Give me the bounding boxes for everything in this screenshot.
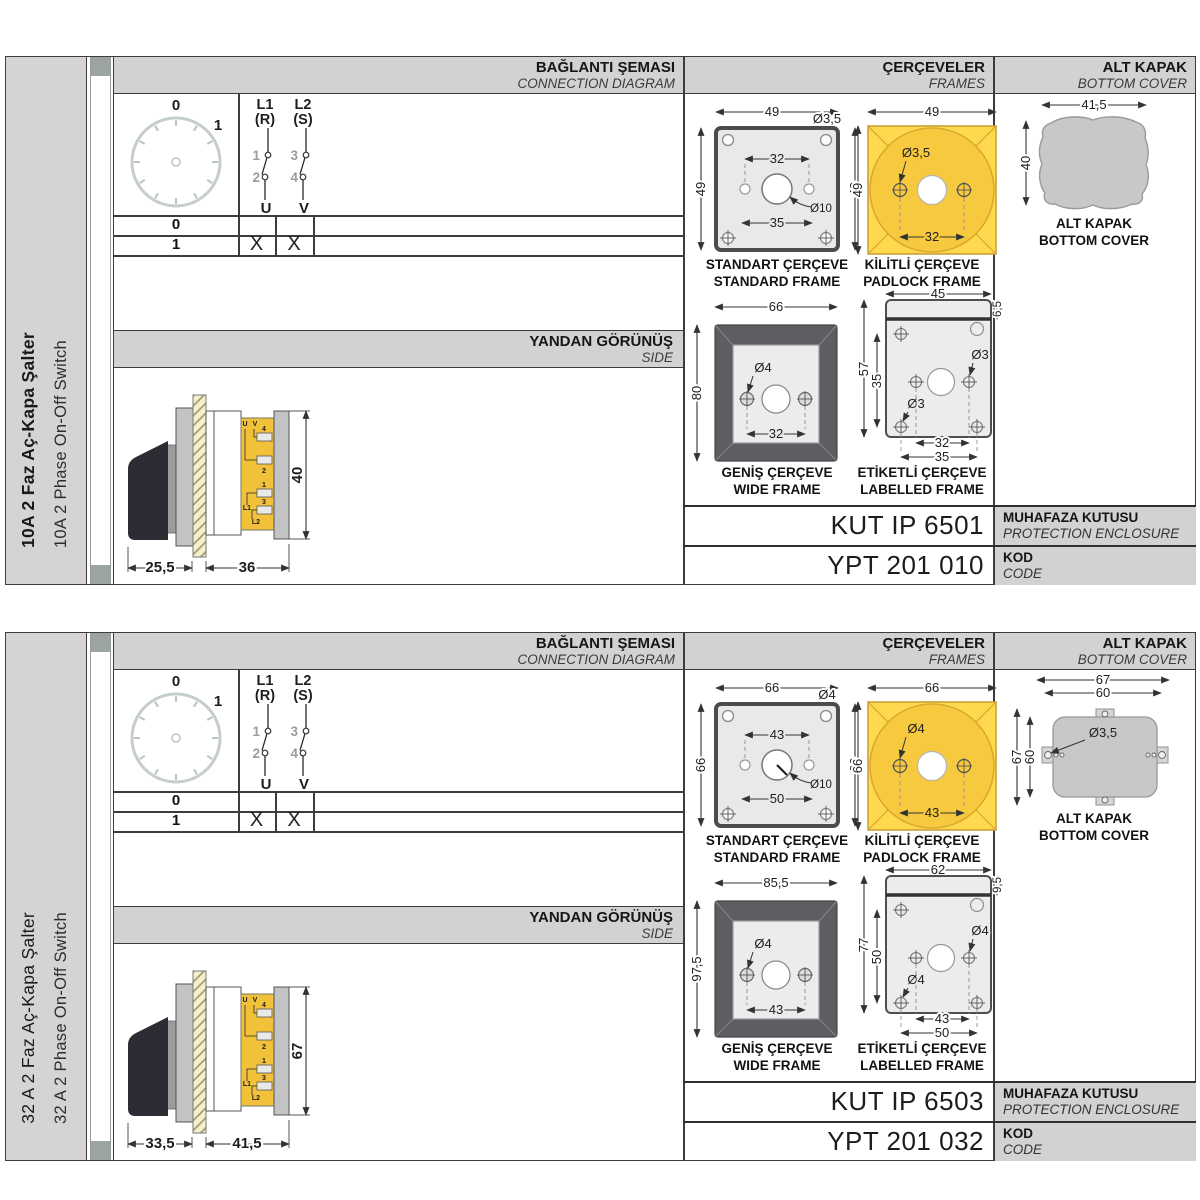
center-hole-icon — [918, 176, 947, 205]
side-view-drawing: U V 4 2 1 3 L1 L2 40 25,5 36 — [126, 389, 336, 579]
header-cover-title: ALT KAPAK — [994, 59, 1187, 76]
table-row0-label: 0 — [114, 791, 238, 811]
wide-frame-drawing: 85,5 97,5 Ø4 43 — [687, 875, 861, 1041]
dim-span-label: 32 — [769, 426, 783, 441]
header-connection-title: BAĞLANTI ŞEMASI — [114, 635, 675, 652]
dim-body-label: 41,5 — [232, 1135, 261, 1152]
code-label: KOD CODE — [994, 1123, 1196, 1161]
contact-1-label: 1 — [252, 724, 260, 739]
header-frames: ÇERÇEVELER FRAMES — [684, 633, 993, 670]
knob-shape — [128, 1017, 168, 1116]
contact-4-label: 4 — [290, 170, 298, 185]
standard-frame-caption: STANDART ÇERÇEVE STANDARD FRAME — [687, 833, 867, 866]
switch-diagram: L1 (R) L2 (S) 1 2 3 4 U V — [238, 670, 448, 791]
fixing-hole-icon — [804, 760, 814, 770]
dim-center-hole-label: Ø10 — [810, 203, 832, 215]
terminal-4-label: 4 — [262, 1002, 266, 1009]
dim-width-label: 62 — [931, 862, 945, 877]
end-plate-shape — [274, 411, 289, 539]
dim-strip-label: 6,5 — [992, 301, 1004, 317]
bottom-cover-caption: ALT KAPAK BOTTOM COVER — [999, 811, 1189, 844]
spacer-shape — [206, 411, 214, 535]
line-l1-phase-label: (R) — [255, 688, 275, 704]
terminal-l2-label: L2 — [252, 519, 260, 526]
terminal-2-label: 2 — [262, 468, 266, 475]
binder-cap-bottom — [91, 1141, 110, 1160]
code-row: YPT 201 032 KOD CODE — [683, 1121, 1196, 1161]
side-view-drawing: U V 4 2 1 3 L1 L2 67 33,5 41,5 — [126, 965, 336, 1155]
contact-pole-1-icon — [262, 704, 271, 776]
table-mark-v: X — [275, 811, 313, 831]
enclosure-code-value: KUT IP 6503 — [683, 1083, 994, 1121]
main-area: BAĞLANTI ŞEMASI CONNECTION DIAGRAM ÇERÇE… — [113, 633, 1195, 1160]
contact-2-label: 2 — [252, 746, 260, 761]
dim-hole-label: Ø4 — [818, 687, 835, 702]
caption-tr: ETİKETLİ ÇERÇEVE — [842, 1041, 1002, 1058]
dim-height-left-label: 49 — [693, 182, 708, 196]
strip-hole-icon — [971, 323, 984, 336]
line-l2-phase-label: (S) — [293, 112, 313, 128]
header-frames: ÇERÇEVELER FRAMES — [684, 57, 993, 94]
dial-face-icon — [132, 118, 220, 206]
labelled-frame-drawing: 45 6,5 57 35 Ø3 — [856, 287, 1002, 465]
bottom-cover-caption: ALT KAPAK BOTTOM COVER — [999, 216, 1189, 249]
terminal-4-label: 4 — [262, 426, 266, 433]
header-connection-subtitle: CONNECTION DIAGRAM — [114, 76, 675, 91]
header-connection: BAĞLANTI ŞEMASI CONNECTION DIAGRAM — [114, 57, 683, 94]
table-col-divider — [238, 94, 240, 255]
enclosure-row: KUT IP 6501 MUHAFAZA KUTUSU PROTECTION E… — [683, 505, 1196, 545]
caption-en: BOTTOM COVER — [999, 828, 1189, 845]
header-cover-title: ALT KAPAK — [994, 635, 1187, 652]
dial-drawing: 0 1 — [114, 670, 238, 791]
caption-tr: KİLİTLİ ÇERÇEVE — [842, 257, 1002, 274]
dial-face-icon — [132, 694, 220, 782]
center-hole-icon — [918, 752, 947, 781]
knob-shape — [128, 441, 168, 540]
header-cover: ALT KAPAK BOTTOM COVER — [994, 57, 1195, 94]
contact-pole-2-icon — [300, 128, 309, 200]
side-subtitle: SIDE — [114, 350, 673, 365]
caption-tr: STANDART ÇERÇEVE — [687, 833, 867, 850]
product-sidebar: 10A 2 Faz Aç-Kapa Şalter 10A 2 Phase On-… — [6, 57, 87, 584]
standard-frame-drawing: 49 Ø3,5 49 49 32 Ø10 35 — [692, 96, 862, 258]
binder-strip — [90, 633, 111, 1160]
header-frames-subtitle: FRAMES — [684, 652, 985, 667]
header-connection-subtitle: CONNECTION DIAGRAM — [114, 652, 675, 667]
center-hole-icon — [928, 369, 955, 396]
code-label-en: CODE — [1003, 1142, 1196, 1157]
table-row0-label: 0 — [114, 215, 238, 235]
header-frames-title: ÇERÇEVELER — [684, 635, 985, 652]
dim-span-outer-label: 50 — [935, 1025, 949, 1040]
terminal-u-label: U — [242, 421, 247, 428]
side-title: YANDAN GÖRÜNÜŞ — [114, 909, 673, 926]
terminal-1-label: 1 — [262, 482, 266, 489]
dim-hole-label: Ø4 — [907, 721, 924, 736]
binder-cap-bottom — [91, 565, 110, 584]
contact-pole-2-icon — [300, 704, 309, 776]
labelled-frame-caption: ETİKETLİ ÇERÇEVE LABELLED FRAME — [842, 465, 1002, 498]
enclosure-label-en: PROTECTION ENCLOSURE — [1003, 1102, 1196, 1117]
enclosure-label: MUHAFAZA KUTUSU PROTECTION ENCLOSURE — [994, 1083, 1196, 1121]
terminal-l1-label: L1 — [243, 505, 251, 512]
caption-en: STANDARD FRAME — [687, 850, 867, 867]
dim-width-inner-label: 60 — [1096, 685, 1110, 700]
center-hole-icon — [762, 385, 790, 413]
contact-3-label: 3 — [290, 148, 298, 163]
dim-span-label: 43 — [925, 805, 939, 820]
dim-height-left-label: 66 — [693, 758, 708, 772]
dim-hole-label: Ø3,5 — [1089, 725, 1117, 740]
caption-tr: KİLİTLİ ÇERÇEVE — [842, 833, 1002, 850]
contact-1-label: 1 — [252, 148, 260, 163]
enclosure-code-value: KUT IP 6501 — [683, 507, 994, 545]
dim-hole-right-label: Ø4 — [971, 923, 988, 938]
caption-en: BOTTOM COVER — [999, 233, 1189, 250]
header-connection-title: BAĞLANTI ŞEMASI — [114, 59, 675, 76]
table-mark-u: X — [238, 811, 275, 831]
code-label-en: CODE — [1003, 566, 1196, 581]
caption-tr: STANDART ÇERÇEVE — [687, 257, 867, 274]
dim-hole-label: Ø4 — [754, 936, 771, 951]
sidebar-title-en: 10A 2 Phase On-Off Switch — [52, 340, 71, 548]
table-cell-divider — [313, 215, 315, 255]
center-hole-icon — [928, 945, 955, 972]
cover-shape — [1039, 117, 1148, 209]
table-mark-u: X — [238, 235, 275, 255]
end-plate-shape — [274, 987, 289, 1115]
caption-tr: ALT KAPAK — [999, 811, 1189, 828]
padlock-frame-drawing: 66 66 Ø4 43 — [852, 672, 1002, 834]
strip-hole-icon — [971, 899, 984, 912]
dim-hole-right-label: Ø3 — [971, 347, 988, 362]
fixing-hole-icon — [740, 184, 750, 194]
dim-inner-height-label: 50 — [869, 950, 884, 964]
side-title-bar: YANDAN GÖRÜNÜŞ SIDE — [114, 906, 683, 944]
product-panel-10a: 10A 2 Faz Aç-Kapa Şalter 10A 2 Phase On-… — [5, 56, 1196, 585]
center-hole-icon — [762, 961, 790, 989]
bottom-cover-drawing: 67 60 67 60 Ø3,5 — [1009, 673, 1189, 810]
terminal-v-label: V — [253, 421, 258, 428]
dial-drawing: 0 1 — [114, 94, 238, 215]
side-subtitle: SIDE — [114, 926, 673, 941]
dim-span-label: 43 — [769, 1002, 783, 1017]
header-cover-subtitle: BOTTOM COVER — [994, 76, 1187, 91]
dial-position-0-label: 0 — [172, 97, 180, 114]
dim-width-label: 41,5 — [1081, 97, 1106, 112]
line-l2-phase-label: (S) — [293, 688, 313, 704]
labelled-frame-caption: ETİKETLİ ÇERÇEVE LABELLED FRAME — [842, 1041, 1002, 1074]
terminal-v-label: V — [253, 997, 258, 1004]
dim-width-label: 49 — [765, 104, 779, 119]
table-col-divider — [238, 670, 240, 831]
contact-3-label: 3 — [290, 724, 298, 739]
mount-plate-shape — [176, 408, 193, 546]
padlock-frame-caption: KİLİTLİ ÇERÇEVE PADLOCK FRAME — [842, 257, 1002, 290]
header-cover-subtitle: BOTTOM COVER — [994, 652, 1187, 667]
dim-width-label: 49 — [925, 104, 939, 119]
terminal-2-label: 2 — [262, 1044, 266, 1051]
product-code-value: YPT 201 032 — [683, 1123, 994, 1161]
fixing-hole-icon — [804, 184, 814, 194]
bottom-cover-drawing: 41,5 40 — [1004, 97, 1184, 215]
sidebar-title-tr: 32 A 2 Faz Aç-Kapa Şalter — [18, 912, 39, 1124]
header-frames-subtitle: FRAMES — [684, 76, 985, 91]
dim-front-label: 25,5 — [145, 559, 174, 576]
caption-en: WIDE FRAME — [687, 1058, 867, 1075]
switch-diagram: L1 (R) L2 (S) 1 2 3 4 U V — [238, 94, 448, 215]
dim-inner-height-label: 35 — [869, 374, 884, 388]
contact-pole-1-icon — [262, 128, 271, 200]
caption-en: WIDE FRAME — [687, 482, 867, 499]
dim-height-label: 40 — [1018, 156, 1033, 170]
header-connection: BAĞLANTI ŞEMASI CONNECTION DIAGRAM — [114, 633, 683, 670]
binder-cap-top — [91, 633, 110, 652]
contact-2-label: 2 — [252, 170, 260, 185]
caption-tr: GENİŞ ÇERÇEVE — [687, 465, 867, 482]
dim-front-label: 33,5 — [145, 1135, 174, 1152]
code-label-tr: KOD — [1003, 1126, 1196, 1142]
caption-en: STANDARD FRAME — [687, 274, 867, 291]
enclosure-label-tr: MUHAFAZA KUTUSU — [1003, 1086, 1196, 1102]
standard-frame-caption: STANDART ÇERÇEVE STANDARD FRAME — [687, 257, 867, 290]
product-code-value: YPT 201 010 — [683, 547, 994, 585]
dial-position-1-label: 1 — [214, 117, 222, 134]
dim-span-label: 32 — [925, 229, 939, 244]
panel-hatch-shape — [193, 971, 206, 1133]
dim-height-label: 66 — [850, 759, 865, 773]
code-label: KOD CODE — [994, 547, 1196, 585]
contact-4-label: 4 — [290, 746, 298, 761]
table-line — [114, 255, 683, 257]
padlock-frame-caption: KİLİTLİ ÇERÇEVE PADLOCK FRAME — [842, 833, 1002, 866]
dim-width-label: 66 — [769, 299, 783, 314]
header-frames-title: ÇERÇEVELER — [684, 59, 985, 76]
dim-span-label: 32 — [770, 151, 784, 166]
line-l2-label: L2 — [295, 673, 312, 689]
dim-span-outer-label: 35 — [935, 449, 949, 464]
dim-hole-label: Ø3,5 — [902, 145, 930, 160]
terminal-l1-label: L1 — [243, 1081, 251, 1088]
table-row1-label: 1 — [114, 811, 238, 831]
dim-hole-label: Ø4 — [754, 360, 771, 375]
dim-height-label: 49 — [850, 183, 865, 197]
binder-strip — [90, 57, 111, 584]
line-l1-label: L1 — [257, 97, 274, 113]
terminal-3-label: 3 — [262, 1075, 266, 1082]
table-row1-label: 1 — [114, 235, 238, 255]
product-panel-32a: 32 A 2 Faz Aç-Kapa Şalter 32 A 2 Phase O… — [5, 632, 1196, 1161]
table-cell-divider — [313, 791, 315, 831]
table-line — [114, 831, 683, 833]
table-mark-v: X — [275, 235, 313, 255]
dim-span-label: 43 — [935, 1011, 949, 1026]
dim-width-label: 66 — [925, 680, 939, 695]
dim-width-label: 85,5 — [763, 875, 788, 890]
terminal-l2-label: L2 — [252, 1095, 260, 1102]
dim-width-label: 45 — [931, 286, 945, 301]
terminal-u-label: U — [242, 997, 247, 1004]
padlock-frame-drawing: 49 49 Ø3,5 32 — [852, 96, 1002, 258]
mount-plate-shape — [176, 984, 193, 1122]
code-label-tr: KOD — [1003, 550, 1196, 566]
standard-frame-drawing: 66 Ø4 66 66 43 Ø10 50 — [692, 672, 862, 834]
dim-span-outer-label: 50 — [770, 791, 784, 806]
line-l2-label: L2 — [295, 97, 312, 113]
body-shape — [214, 411, 241, 535]
caption-tr: GENİŞ ÇERÇEVE — [687, 1041, 867, 1058]
center-hole-icon — [762, 174, 792, 204]
caption-tr: ALT KAPAK — [999, 216, 1189, 233]
line-l1-label: L1 — [257, 673, 274, 689]
dim-span-outer-label: 35 — [770, 215, 784, 230]
side-title-bar: YANDAN GÖRÜNÜŞ SIDE — [114, 330, 683, 368]
wide-frame-caption: GENİŞ ÇERÇEVE WIDE FRAME — [687, 465, 867, 498]
dim-height-label: 40 — [289, 467, 306, 484]
line-l1-phase-label: (R) — [255, 112, 275, 128]
wide-frame-drawing: 66 80 Ø4 32 — [687, 299, 861, 465]
caption-en: LABELLED FRAME — [842, 482, 1002, 499]
main-area: BAĞLANTI ŞEMASI CONNECTION DIAGRAM ÇERÇE… — [113, 57, 1195, 584]
product-sidebar: 32 A 2 Faz Aç-Kapa Şalter 32 A 2 Phase O… — [6, 633, 87, 1160]
dim-body-label: 36 — [239, 559, 256, 576]
dim-height-label: 67 — [289, 1043, 306, 1060]
binder-cap-top — [91, 57, 110, 76]
dim-width-label: 66 — [765, 680, 779, 695]
dim-span-label: 32 — [935, 435, 949, 450]
caption-en: LABELLED FRAME — [842, 1058, 1002, 1075]
sidebar-title-tr: 10A 2 Faz Aç-Kapa Şalter — [18, 332, 39, 548]
dim-strip-label: 9,5 — [992, 877, 1004, 893]
terminal-3-label: 3 — [262, 499, 266, 506]
header-cover: ALT KAPAK BOTTOM COVER — [994, 633, 1195, 670]
enclosure-label-tr: MUHAFAZA KUTUSU — [1003, 510, 1196, 526]
enclosure-row: KUT IP 6503 MUHAFAZA KUTUSU PROTECTION E… — [683, 1081, 1196, 1121]
dial-position-0-label: 0 — [172, 673, 180, 690]
panel-hatch-shape — [193, 395, 206, 557]
side-title: YANDAN GÖRÜNÜŞ — [114, 333, 673, 350]
wide-frame-caption: GENİŞ ÇERÇEVE WIDE FRAME — [687, 1041, 867, 1074]
dim-center-hole-label: Ø10 — [810, 779, 832, 791]
enclosure-label-en: PROTECTION ENCLOSURE — [1003, 526, 1196, 541]
dim-height-label: 80 — [689, 386, 704, 400]
dim-hole-label: Ø3,5 — [813, 111, 841, 126]
spacer-shape — [206, 987, 214, 1111]
terminal-1-label: 1 — [262, 1058, 266, 1065]
caption-tr: ETİKETLİ ÇERÇEVE — [842, 465, 1002, 482]
body-shape — [214, 987, 241, 1111]
dial-position-1-label: 1 — [214, 693, 222, 710]
code-row: YPT 201 010 KOD CODE — [683, 545, 1196, 585]
dim-height-inner-label: 60 — [1022, 750, 1037, 764]
sidebar-title-en: 32 A 2 Phase On-Off Switch — [52, 912, 71, 1124]
dim-span-label: 43 — [770, 727, 784, 742]
enclosure-label: MUHAFAZA KUTUSU PROTECTION ENCLOSURE — [994, 507, 1196, 545]
dim-height-label: 97,5 — [689, 956, 704, 981]
labelled-frame-drawing: 62 9,5 77 50 Ø4 — [856, 863, 1002, 1041]
fixing-hole-icon — [740, 760, 750, 770]
